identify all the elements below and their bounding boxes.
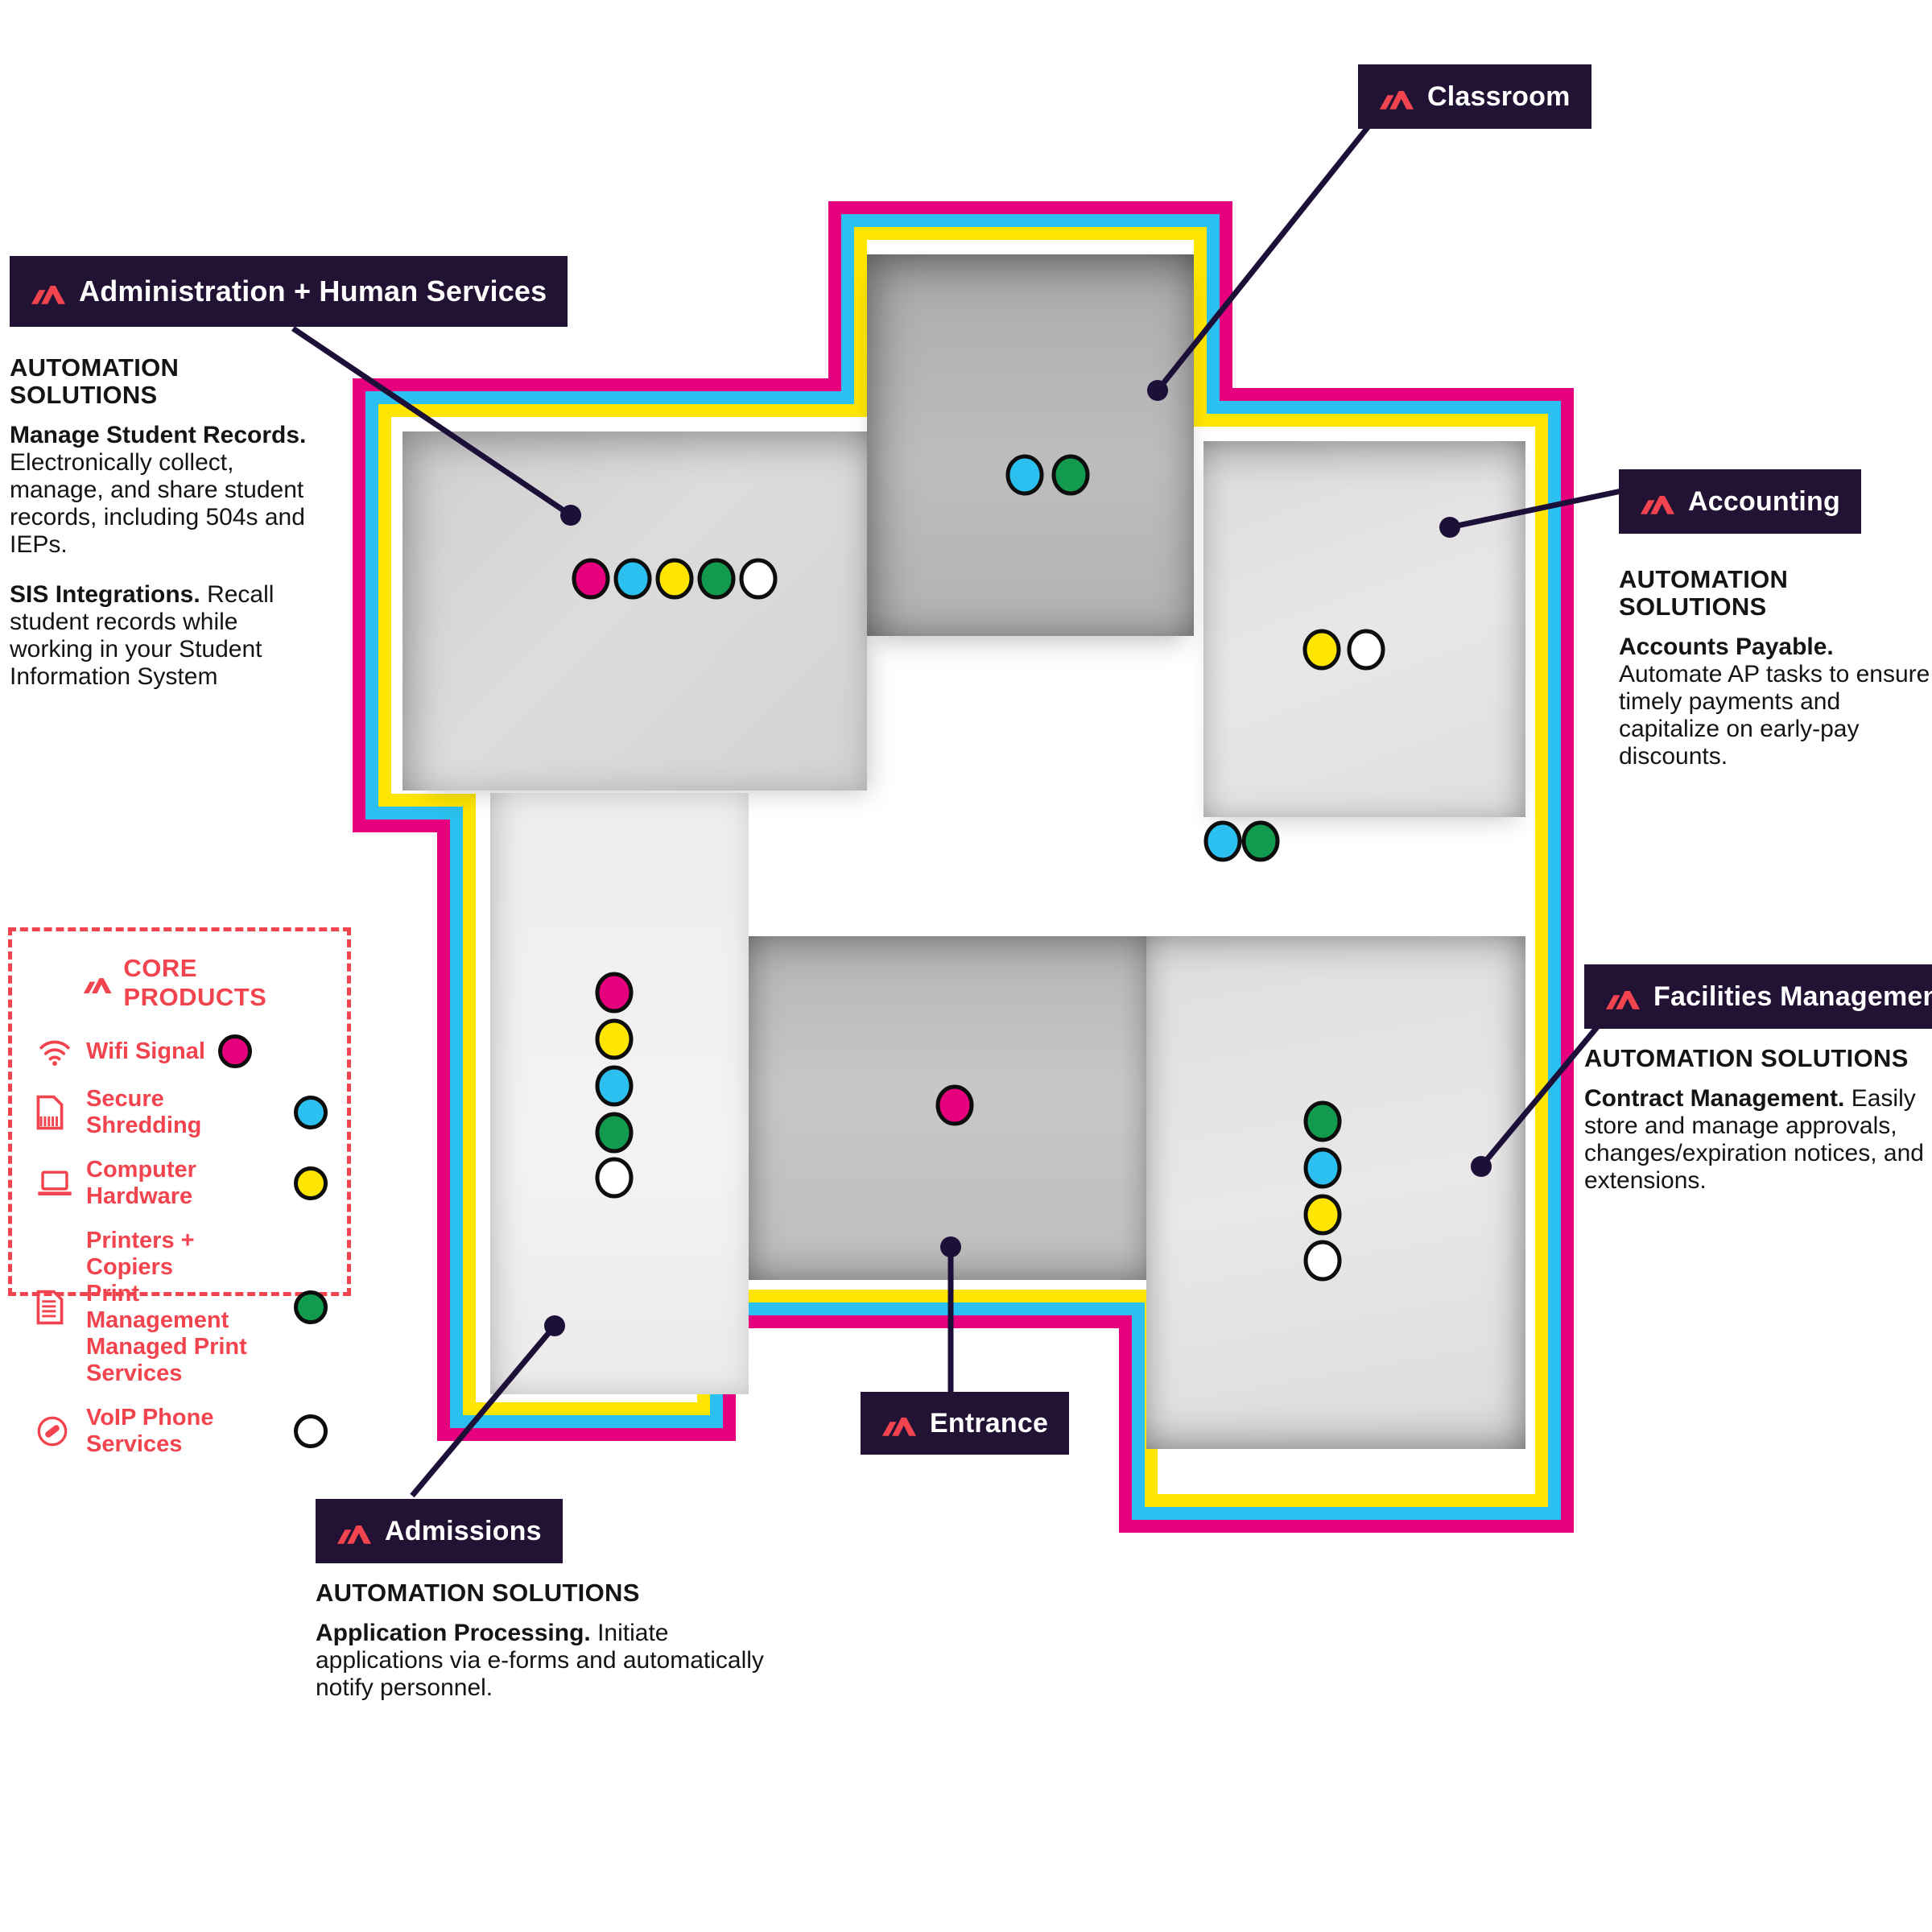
wifi-icon <box>36 1036 75 1067</box>
legend-item-hardware: Computer Hardware <box>36 1157 328 1210</box>
label-accounting-text: Accounting <box>1688 486 1840 518</box>
label-facilities: Facilities Management <box>1584 964 1932 1029</box>
text-block-accounting: AUTOMATION SOLUTIONS Accounts Payable. A… <box>1619 566 1931 793</box>
brand-logo-icon <box>1640 489 1675 514</box>
label-admissions-text: Admissions <box>385 1516 542 1547</box>
paragraph-lead: Manage Student Records. <box>10 422 306 448</box>
paragraph: Manage Student Records. Electronically c… <box>10 422 317 559</box>
brand-logo-icon <box>83 972 112 994</box>
voip-phone-icon <box>36 1415 75 1447</box>
room-admissions <box>490 793 749 1394</box>
paragraph-text: Automate AP tasks to ensure timely payme… <box>1619 661 1930 770</box>
legend-item-shredding: Secure Shredding <box>36 1086 328 1139</box>
wifi-dot-magenta <box>218 1034 252 1068</box>
legend-item-label: Printers + Copiers Print Management Mana… <box>86 1228 281 1387</box>
voip-dot-white <box>294 1414 328 1448</box>
label-accounting: Accounting <box>1619 469 1861 534</box>
room-classroom <box>867 254 1194 636</box>
brand-logo-icon <box>1605 984 1641 1009</box>
legend-header: CORE PRODUCTS <box>83 954 328 1012</box>
text-block-facilities: AUTOMATION SOLUTIONS Contract Management… <box>1584 1045 1930 1217</box>
paragraph-lead: Contract Management. <box>1584 1085 1844 1112</box>
legend-title: CORE PRODUCTS <box>123 954 328 1012</box>
legend-item-label: VoIP Phone Services <box>86 1405 281 1458</box>
paragraph-lead: SIS Integrations. <box>10 581 200 608</box>
label-classroom-text: Classroom <box>1427 81 1571 113</box>
legend-item-printers: Printers + Copiers Print Management Mana… <box>36 1228 328 1387</box>
label-entrance: Entrance <box>861 1392 1069 1455</box>
label-classroom: Classroom <box>1358 64 1591 129</box>
hardware-dot-yellow <box>294 1166 328 1200</box>
brand-logo-icon <box>31 279 66 304</box>
legend-item-label: Secure Shredding <box>86 1086 281 1139</box>
automation-solutions-heading: AUTOMATION SOLUTIONS <box>1584 1045 1930 1072</box>
label-entrance-text: Entrance <box>930 1408 1048 1439</box>
label-facilities-text: Facilities Management <box>1653 981 1932 1013</box>
paragraph: Contract Management. Easily store and ma… <box>1584 1085 1930 1195</box>
automation-solutions-heading: AUTOMATION SOLUTIONS <box>1619 566 1931 621</box>
brand-logo-icon <box>336 1518 372 1544</box>
paragraph: SIS Integrations. Recall student records… <box>10 581 317 691</box>
automation-solutions-heading: AUTOMATION SOLUTIONS <box>10 354 317 409</box>
shredding-dot-cyan <box>294 1096 328 1129</box>
laptop-icon <box>36 1169 75 1198</box>
paragraph: Application Processing. Initiate applica… <box>316 1620 766 1702</box>
room-facilities <box>1146 936 1525 1449</box>
room-entrance <box>749 936 1146 1280</box>
printers-dot-green <box>294 1290 328 1324</box>
legend-item-label: Computer Hardware <box>86 1157 281 1210</box>
paragraph-text: Electronically collect, manage, and shar… <box>10 449 305 558</box>
printer-document-icon <box>36 1290 75 1325</box>
text-block-admissions: AUTOMATION SOLUTIONS Application Process… <box>316 1579 766 1724</box>
brand-logo-icon <box>1379 84 1414 109</box>
paragraph-lead: Accounts Payable. <box>1619 634 1834 660</box>
core-products-legend: CORE PRODUCTS Wifi Signal Secure Shreddi… <box>8 927 351 1296</box>
room-administration <box>402 431 867 791</box>
label-admissions: Admissions <box>316 1499 563 1563</box>
label-administration: Administration + Human Services <box>10 256 568 327</box>
automation-solutions-heading: AUTOMATION SOLUTIONS <box>316 1579 766 1607</box>
paragraph: Accounts Payable. Automate AP tasks to e… <box>1619 634 1931 770</box>
text-block-administration: AUTOMATION SOLUTIONS Manage Student Reco… <box>10 354 317 713</box>
school-floor-plan-infographic: Administration + Human Services Classroo… <box>0 0 1932 1932</box>
legend-item-voip: VoIP Phone Services <box>36 1405 328 1458</box>
legend-item-label: Wifi Signal <box>86 1038 205 1065</box>
room-accounting <box>1203 441 1525 817</box>
label-administration-text: Administration + Human Services <box>79 275 547 308</box>
shredder-document-icon <box>36 1095 75 1130</box>
legend-item-wifi: Wifi Signal <box>36 1034 328 1068</box>
brand-logo-icon <box>881 1410 917 1436</box>
paragraph-lead: Application Processing. <box>316 1620 591 1646</box>
